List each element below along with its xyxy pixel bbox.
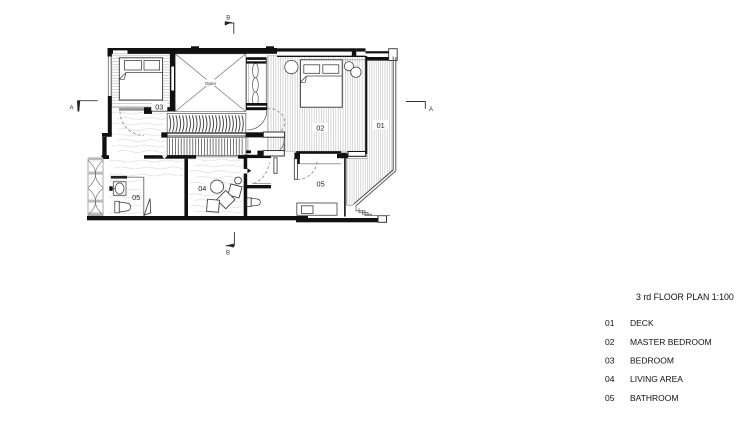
svg-text:3 rd FLOOR PLAN 1:100: 3 rd FLOOR PLAN 1:100 xyxy=(636,292,734,302)
svg-text:03: 03 xyxy=(155,102,163,111)
svg-text:05: 05 xyxy=(317,180,325,189)
svg-text:01: 01 xyxy=(605,318,615,328)
svg-text:B: B xyxy=(226,16,230,22)
svg-text:05: 05 xyxy=(605,393,615,403)
svg-text:MASTER BEDROOM: MASTER BEDROOM xyxy=(630,337,712,347)
svg-text:01: 01 xyxy=(377,121,385,130)
svg-text:BEDROOM: BEDROOM xyxy=(630,356,674,366)
svg-text:BATHROOM: BATHROOM xyxy=(630,393,678,403)
svg-text:05: 05 xyxy=(132,193,140,202)
svg-text:04: 04 xyxy=(605,374,615,384)
svg-text:04: 04 xyxy=(198,184,206,193)
svg-text:LIVING AREA: LIVING AREA xyxy=(630,374,683,384)
svg-text:02: 02 xyxy=(605,337,615,347)
svg-text:A: A xyxy=(69,106,73,112)
svg-text:B: B xyxy=(226,251,230,257)
svg-text:DECK: DECK xyxy=(630,318,654,328)
svg-text:A: A xyxy=(429,107,433,113)
svg-text:02: 02 xyxy=(316,124,324,133)
svg-text:Open: Open xyxy=(205,81,217,86)
svg-text:03: 03 xyxy=(605,356,615,366)
